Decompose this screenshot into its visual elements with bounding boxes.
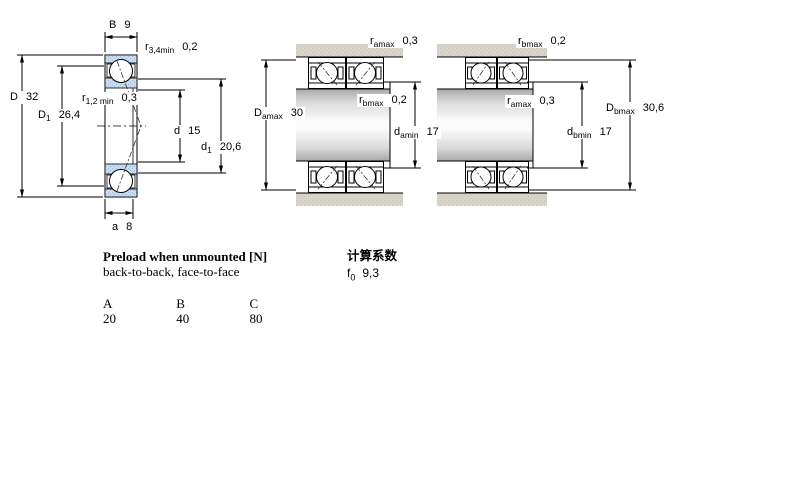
bearing-drawing-page: B9 r3,4min0,2 D32 D126,4 r1,2 min0,3 d15… (0, 0, 800, 500)
dim-label-Damax: Damax30 (252, 107, 305, 120)
dim-label-rbmax-top: rbmax0,2 (516, 35, 568, 48)
dim-label-D1: D126,4 (36, 109, 82, 122)
dim-symbol: D (606, 102, 614, 114)
dim-value: 0,2 (391, 94, 406, 106)
dim-label-d1: d120,6 (199, 141, 243, 154)
dim-label-ramax-mid: ramax0,3 (505, 95, 557, 108)
dim-subscript: amax (374, 39, 395, 49)
dim-value: 0,2 (182, 41, 197, 53)
dim-label-d: d15 (172, 125, 202, 138)
preload-col-A: A (103, 296, 173, 311)
single-bearing-cross-section (97, 55, 146, 197)
dim-value: 30 (291, 107, 303, 119)
dim-subscript: amin (400, 130, 418, 140)
calculation-factors-section: 计算系数 f09,3 (347, 249, 397, 282)
dim-label-B: B9 (107, 19, 132, 32)
preload-table-values: 20 40 80 (103, 311, 320, 326)
mounted-pair-diagram-b (437, 44, 636, 206)
preload-val-A: 20 (103, 311, 173, 326)
housing-bottom (437, 193, 547, 206)
dim-value: 17 (427, 126, 439, 138)
dim-subscript: 1,2 min (86, 96, 114, 106)
dim-subscript: 3,4min (149, 45, 175, 55)
dim-subscript: 1 (207, 145, 212, 155)
dim-value: 26,4 (59, 109, 80, 121)
dim-value: 9 (124, 19, 130, 31)
preload-subtitle: back-to-back, face-to-face (103, 264, 320, 279)
dim-value: 0,3 (402, 35, 417, 47)
ball-top (110, 60, 133, 83)
dim-subscript: amax (511, 99, 532, 109)
dim-subscript: bmax (614, 106, 635, 116)
dim-symbol: D (38, 109, 46, 121)
bearing-section (309, 162, 346, 193)
dim-label-ramax-top: ramax0,3 (368, 35, 420, 48)
dim-symbol: a (112, 221, 118, 233)
factor-subscript: 0 (350, 272, 355, 282)
calculation-factors-title: 计算系数 (347, 249, 397, 264)
preload-col-C: C (250, 296, 320, 311)
dim-value: 32 (26, 91, 38, 103)
dim-label-dbmin: dbmin17 (565, 126, 614, 139)
dim-symbol: D (254, 107, 262, 119)
factor-value: 9,3 (362, 266, 379, 280)
dim-symbol: D (10, 91, 18, 103)
dim-subscript: bmax (363, 98, 384, 108)
mounted-pair-diagram-a (261, 44, 421, 206)
preload-table: A B C 20 40 80 (103, 296, 320, 326)
dim-subscript: amax (262, 111, 283, 121)
ball-bottom (110, 170, 133, 193)
preload-val-C: 80 (250, 311, 320, 326)
preload-col-B: B (176, 296, 246, 311)
dim-label-a: a8 (110, 221, 134, 234)
bearing-section (347, 58, 384, 89)
dim-value: 30,6 (643, 102, 664, 114)
dim-value: 20,6 (220, 141, 241, 153)
right-dimension-lines (527, 60, 636, 190)
dim-value: 17 (600, 126, 612, 138)
dim-label-Dbmax: Dbmax30,6 (604, 102, 666, 115)
dim-label-r12min: r1,2 min0,3 (80, 92, 139, 105)
calculation-factor-f0: f09,3 (347, 266, 397, 282)
dim-symbol: B (109, 19, 116, 31)
dim-label-D: D32 (8, 91, 40, 104)
dim-value: 0,2 (550, 35, 565, 47)
dim-value: 0,3 (122, 92, 137, 104)
housing-bottom (296, 193, 403, 206)
dim-subscript: bmin (573, 130, 591, 140)
dim-subscript: 1 (46, 113, 51, 123)
dim-label-damin: damin17 (392, 126, 441, 139)
dim-label-rbmax-mid: rbmax0,2 (357, 94, 409, 107)
dim-label-r34min: r3,4min0,2 (143, 41, 199, 54)
preload-table-header: A B C (103, 296, 320, 311)
dim-subscript: bmax (522, 39, 543, 49)
preload-title: Preload when unmounted [N] (103, 249, 320, 264)
preload-val-B: 40 (176, 311, 246, 326)
dim-value: 8 (126, 221, 132, 233)
dim-value: 0,3 (539, 95, 554, 107)
dim-symbol: d (174, 125, 180, 137)
preload-section: Preload when unmounted [N] back-to-back,… (103, 249, 320, 326)
dim-value: 15 (188, 125, 200, 137)
